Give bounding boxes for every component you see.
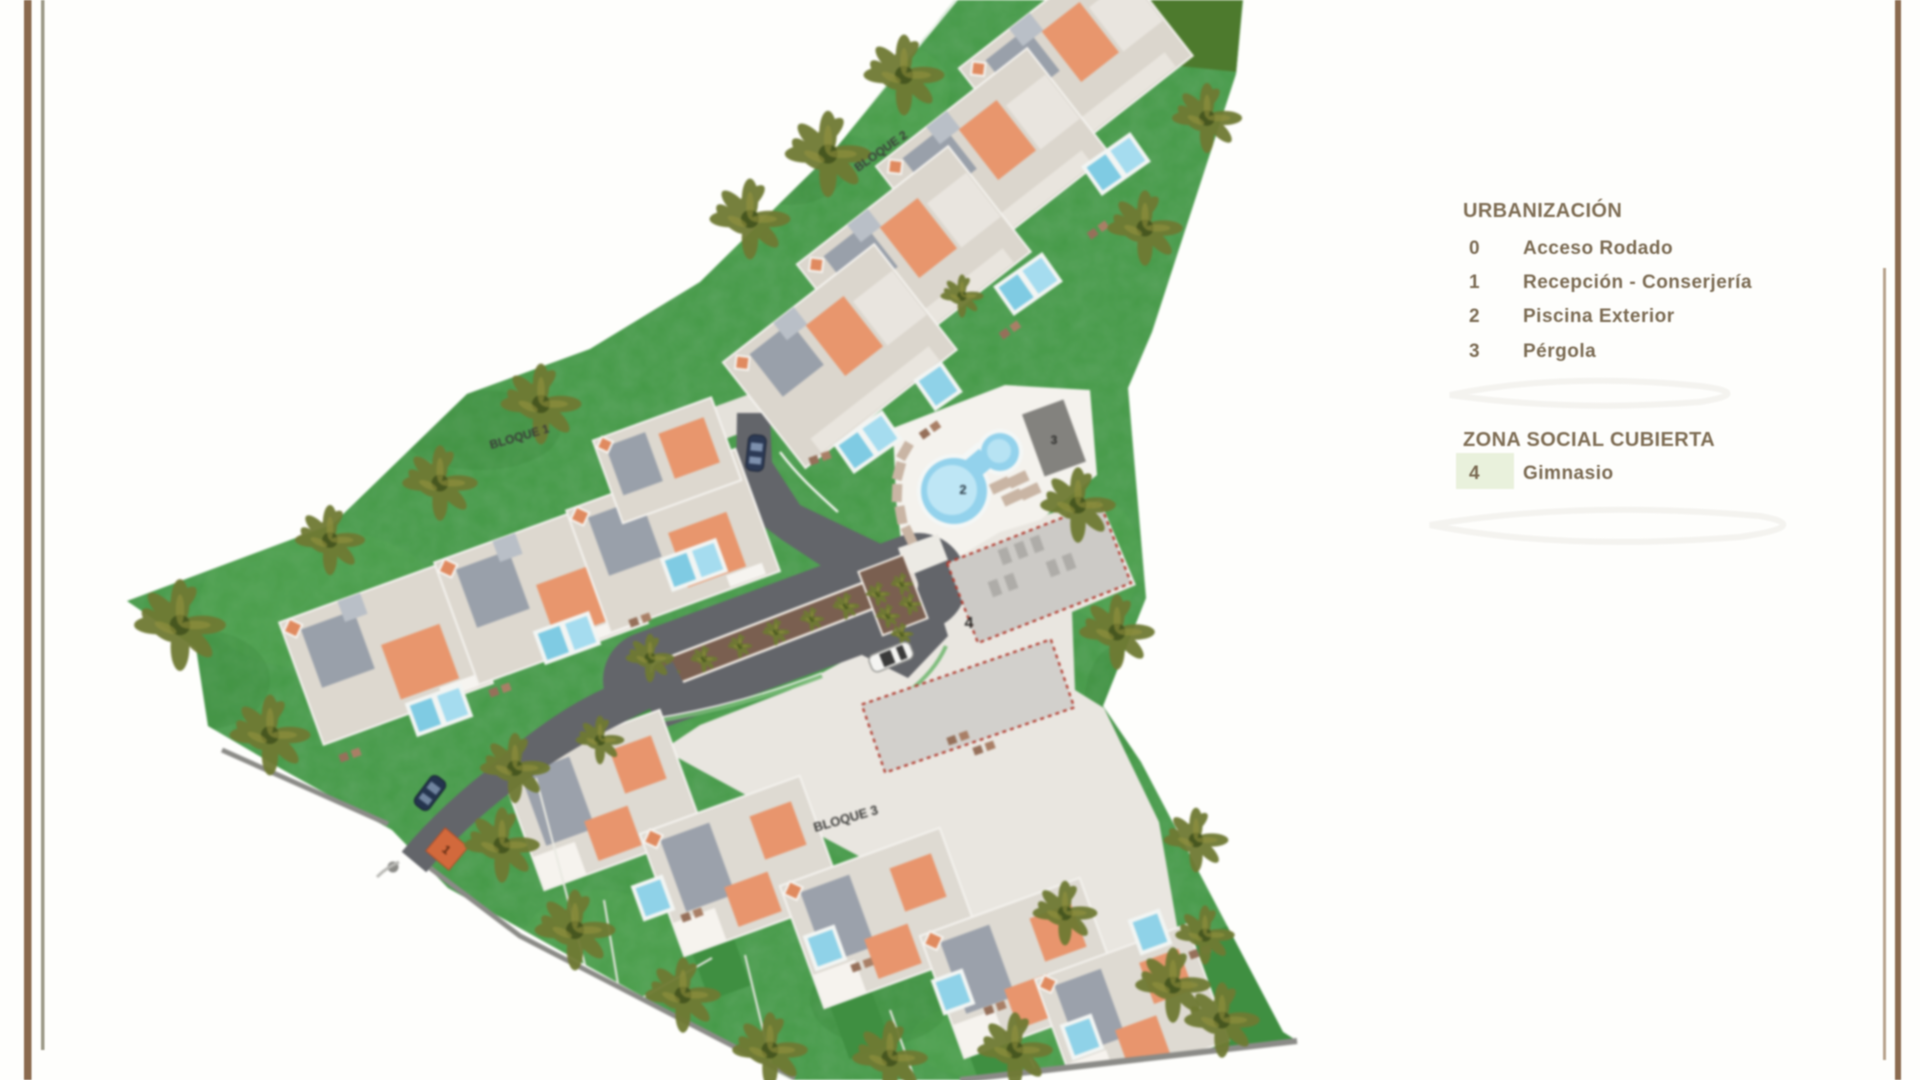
svg-text:3: 3 [1469, 341, 1480, 362]
svg-text:4: 4 [965, 615, 974, 632]
svg-text:Gimnasio: Gimnasio [1523, 463, 1614, 484]
svg-text:ZONA SOCIAL CUBIERTA: ZONA SOCIAL CUBIERTA [1463, 429, 1715, 451]
svg-text:0: 0 [1469, 238, 1480, 259]
svg-text:2: 2 [1469, 306, 1480, 327]
svg-text:Pérgola: Pérgola [1523, 341, 1596, 362]
svg-text:Recepción - Conserjería: Recepción - Conserjería [1523, 272, 1752, 293]
svg-text:URBANIZACIÓN: URBANIZACIÓN [1463, 198, 1622, 222]
svg-text:2: 2 [959, 482, 966, 497]
svg-text:1: 1 [1469, 272, 1480, 293]
svg-text:3: 3 [1051, 433, 1058, 447]
svg-text:Piscina Exterior: Piscina Exterior [1523, 306, 1675, 327]
svg-text:Acceso Rodado: Acceso Rodado [1523, 238, 1673, 259]
svg-text:4: 4 [1469, 463, 1480, 484]
